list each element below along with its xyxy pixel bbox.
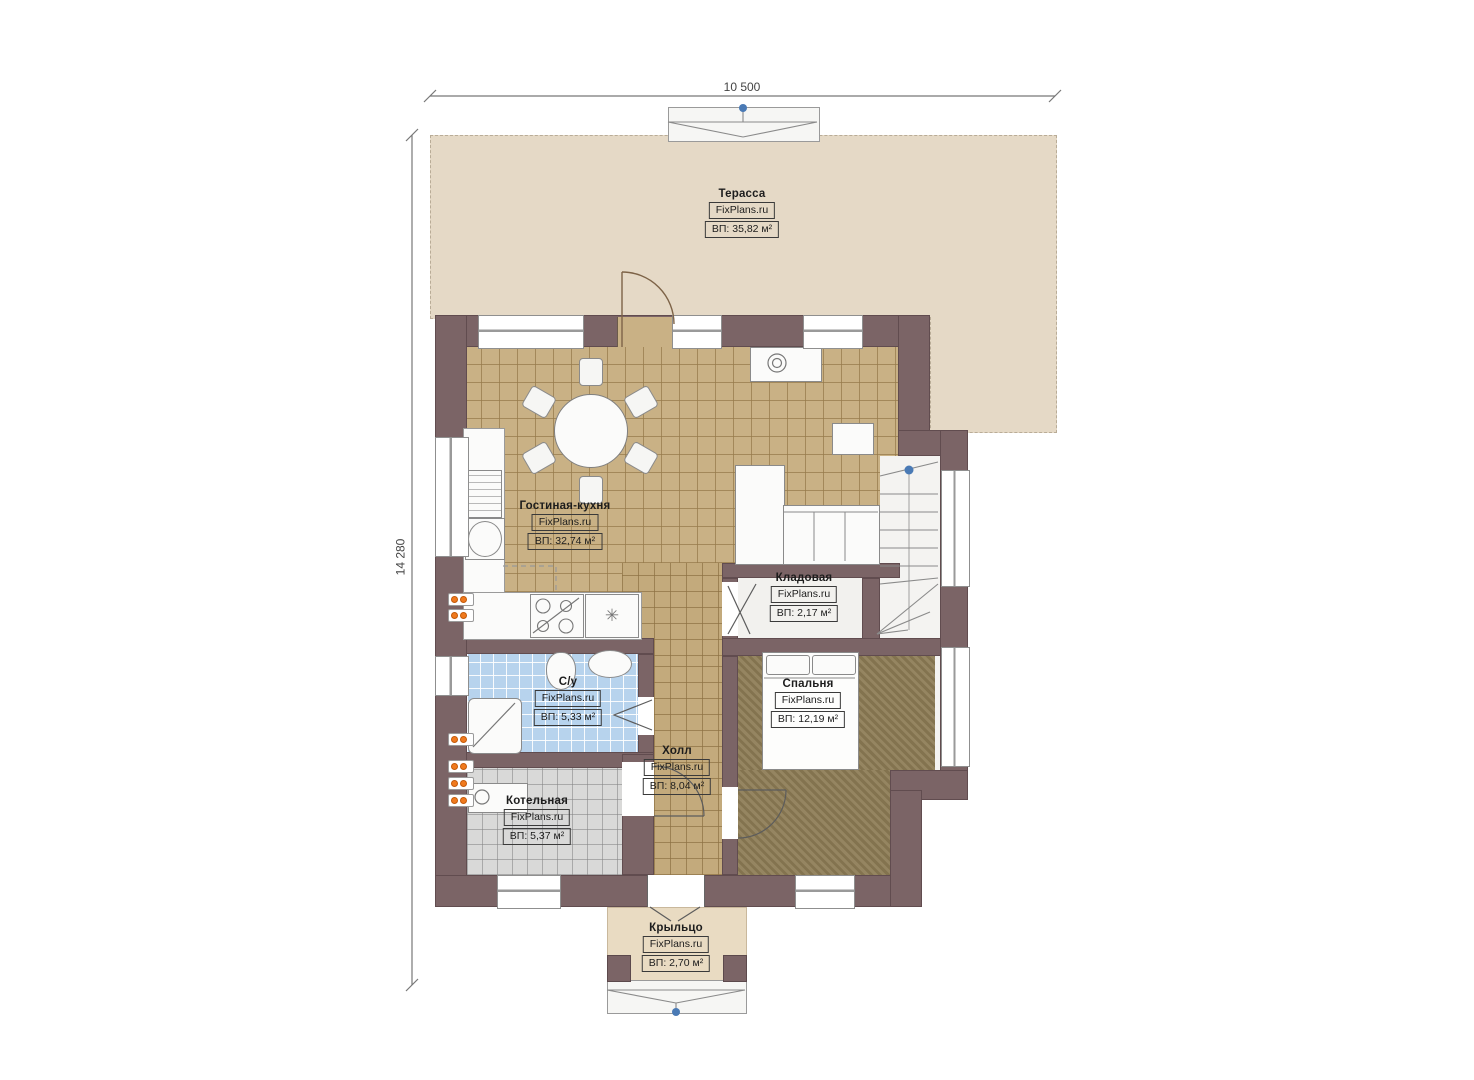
watermark: FixPlans.ru [771,586,838,603]
wall-storage-stairs [862,578,880,640]
watermark: FixPlans.ru [504,809,571,826]
porch-pillar-right [723,955,747,982]
room-label-bedroom: Спальня FixPlans.ru ВП: 12,19 м² [771,678,845,728]
shower-tray [468,698,522,754]
room-name: Котельная [506,795,568,807]
room-label-living-kitchen: Гостиная-кухня FixPlans.ru ВП: 32,74 м² [520,500,611,550]
room-area: ВП: 35,82 м² [705,221,779,238]
window [941,647,970,767]
room-area: ВП: 2,70 м² [642,955,710,972]
kitchen-sink: ✳ [585,594,639,638]
window [478,315,584,349]
bed-pillow-left [766,655,810,675]
window [435,437,469,557]
wall-outer-right-lower [890,790,922,907]
dimension-width-label: 10 500 [724,80,761,94]
window [941,470,970,587]
bed-pillow-right [812,655,856,675]
sofa-chaise [735,465,785,565]
stairs-floor [880,456,940,648]
bathroom-sink [588,650,632,678]
room-area: ВП: 12,19 м² [771,711,845,728]
entrance-door-opening [647,875,705,907]
room-name: Кладовая [776,572,833,584]
watermark: FixPlans.ru [775,692,842,709]
watermark: FixPlans.ru [643,936,710,953]
terrace-steps [668,107,820,142]
radiator-marker [448,777,474,790]
dining-table [554,394,628,468]
terrace-door-opening [617,317,674,347]
bedroom-floor-lower [738,770,890,875]
room-label-porch: Крыльцо FixPlans.ru ВП: 2,70 м² [642,922,710,972]
window [435,656,469,696]
fridge [468,470,502,518]
stove [530,594,584,638]
watermark: FixPlans.ru [709,202,776,219]
room-label-terrace: Терасса FixPlans.ru ВП: 35,82 м² [705,188,779,238]
radiator-marker [448,593,474,606]
coffee-table [832,423,874,455]
room-label-hall: Холл FixPlans.ru ВП: 8,04 м² [643,745,711,795]
room-name: Крыльцо [649,922,703,934]
room-name: Холл [662,745,692,757]
bathroom-door-opening [638,697,654,735]
wall-bedroom-left [722,656,738,875]
watermark: FixPlans.ru [535,690,602,707]
wall-outer-right-upper [898,315,930,440]
room-label-storage: Кладовая FixPlans.ru ВП: 2,17 м² [770,572,838,622]
terrace-floor-right [930,317,1057,433]
room-name: Гостиная-кухня [520,500,611,512]
room-label-boiler: Котельная FixPlans.ru ВП: 5,37 м² [503,795,571,845]
room-area: ВП: 32,74 м² [528,533,602,550]
room-area: ВП: 5,33 м² [534,709,602,726]
storage-door-opening [722,582,738,636]
porch-steps [607,980,747,1014]
window [672,315,722,349]
radiator-marker [448,733,474,746]
kitchen-corner-sink-bowl [468,521,502,557]
room-area: ВП: 2,17 м² [770,605,838,622]
floor-plan-canvas: ✳ [0,0,1474,1080]
room-name: Спальня [782,678,833,690]
bedroom-door-opening [722,787,738,839]
radiator-marker [448,760,474,773]
watermark: FixPlans.ru [644,759,711,776]
room-label-bathroom: С/у FixPlans.ru ВП: 5,33 м² [534,676,602,726]
fireplace [750,347,822,382]
radiator-marker [448,609,474,622]
window [803,315,863,349]
porch-pillar-left [607,955,631,982]
sofa-seat [783,505,880,565]
room-area: ВП: 5,37 м² [503,828,571,845]
room-area: ВП: 8,04 м² [643,778,711,795]
watermark: FixPlans.ru [532,514,599,531]
dimension-height-label: 14 280 [393,539,407,576]
radiator-marker [448,794,474,807]
window [795,875,855,909]
dining-chair [579,358,603,386]
room-name: Терасса [718,188,765,200]
window [497,875,561,909]
room-name: С/у [559,676,578,688]
